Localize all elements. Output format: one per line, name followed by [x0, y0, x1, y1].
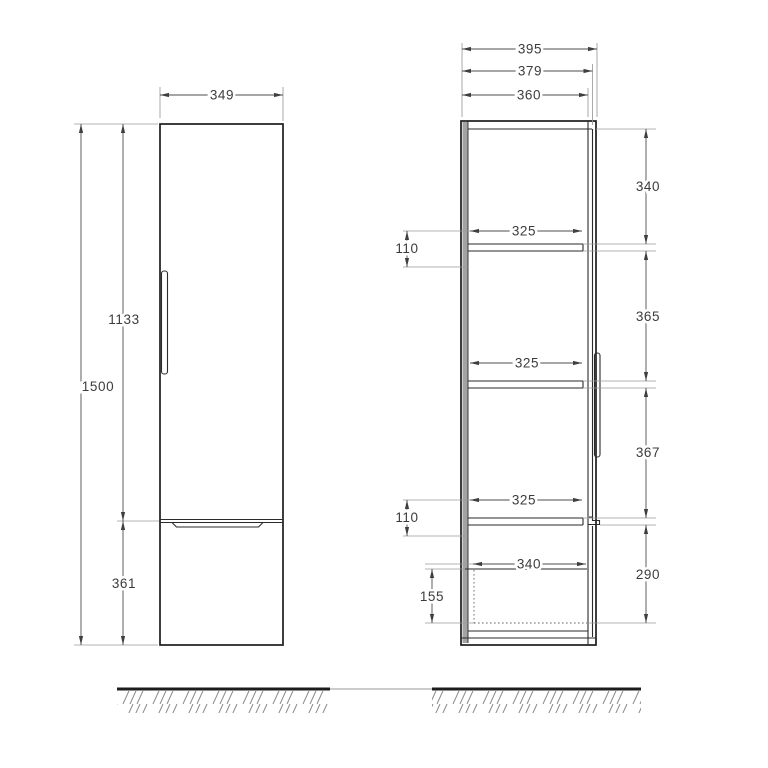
cabinet-technical-drawing: 349 1500 1133 361 — [0, 0, 768, 768]
chain-drawer-zone-label: 290 — [636, 567, 660, 582]
chain-top-gap-label: 340 — [636, 179, 660, 194]
drawer-width-label: 340 — [517, 557, 541, 572]
shelf-width-3-label: 325 — [512, 493, 536, 508]
side-overall-depth-label: 395 — [518, 42, 542, 57]
shelf-width-1-label: 325 — [512, 224, 536, 239]
front-width-label: 349 — [210, 88, 234, 103]
front-drawer-height-label: 361 — [112, 576, 136, 591]
rail-offset-1-label: 110 — [395, 241, 418, 256]
front-door-height-label: 1133 — [108, 312, 139, 327]
side-carcass-depth-label: 360 — [517, 88, 541, 103]
dim-front-door-height: 1133 — [108, 124, 159, 521]
front-cabinet-outline — [160, 124, 283, 645]
dim-shelf-width-3: 325 — [403, 493, 582, 508]
chain-mid-gap-2-label: 367 — [636, 445, 660, 460]
technical-drawing-canvas: 349 1500 1133 361 — [0, 0, 768, 768]
ground-hatch-right — [432, 691, 641, 713]
front-drawer-handle-recess — [172, 523, 263, 528]
shelf-width-2-label: 325 — [515, 356, 539, 371]
front-door-handle — [162, 271, 168, 374]
chain-mid-gap-1-label: 365 — [636, 309, 660, 324]
dim-front-width: 349 — [160, 87, 283, 121]
dim-rail-offset-2: 110 — [395, 500, 468, 536]
side-view: 395 379 360 325 325 325 — [395, 42, 660, 646]
front-view: 349 1500 1133 361 — [74, 87, 283, 645]
dim-front-total-height: 1500 — [74, 124, 158, 645]
front-total-height-label: 1500 — [82, 379, 114, 394]
dim-shelf-width-1: 325 — [403, 224, 582, 239]
ground-hatch-left — [117, 691, 330, 713]
dim-rail-offset-1: 110 — [395, 231, 468, 267]
dim-front-drawer-height: 361 — [112, 521, 136, 645]
dim-side-carcass-depth: 360 — [462, 88, 588, 118]
rail-offset-2-label: 110 — [395, 510, 418, 525]
side-drawer-dotted-box — [465, 569, 587, 623]
shelf-2 — [468, 381, 583, 388]
drawer-inner-height-label: 155 — [420, 589, 444, 604]
shelf-3 — [468, 518, 583, 525]
shelf-1 — [468, 244, 583, 251]
side-back-panel — [463, 122, 469, 643]
side-door-depth-label: 379 — [518, 64, 542, 79]
dim-side-overall-depth: 395 — [462, 42, 597, 118]
ground — [117, 689, 641, 713]
dim-shelf-width-2: 325 — [470, 356, 582, 371]
